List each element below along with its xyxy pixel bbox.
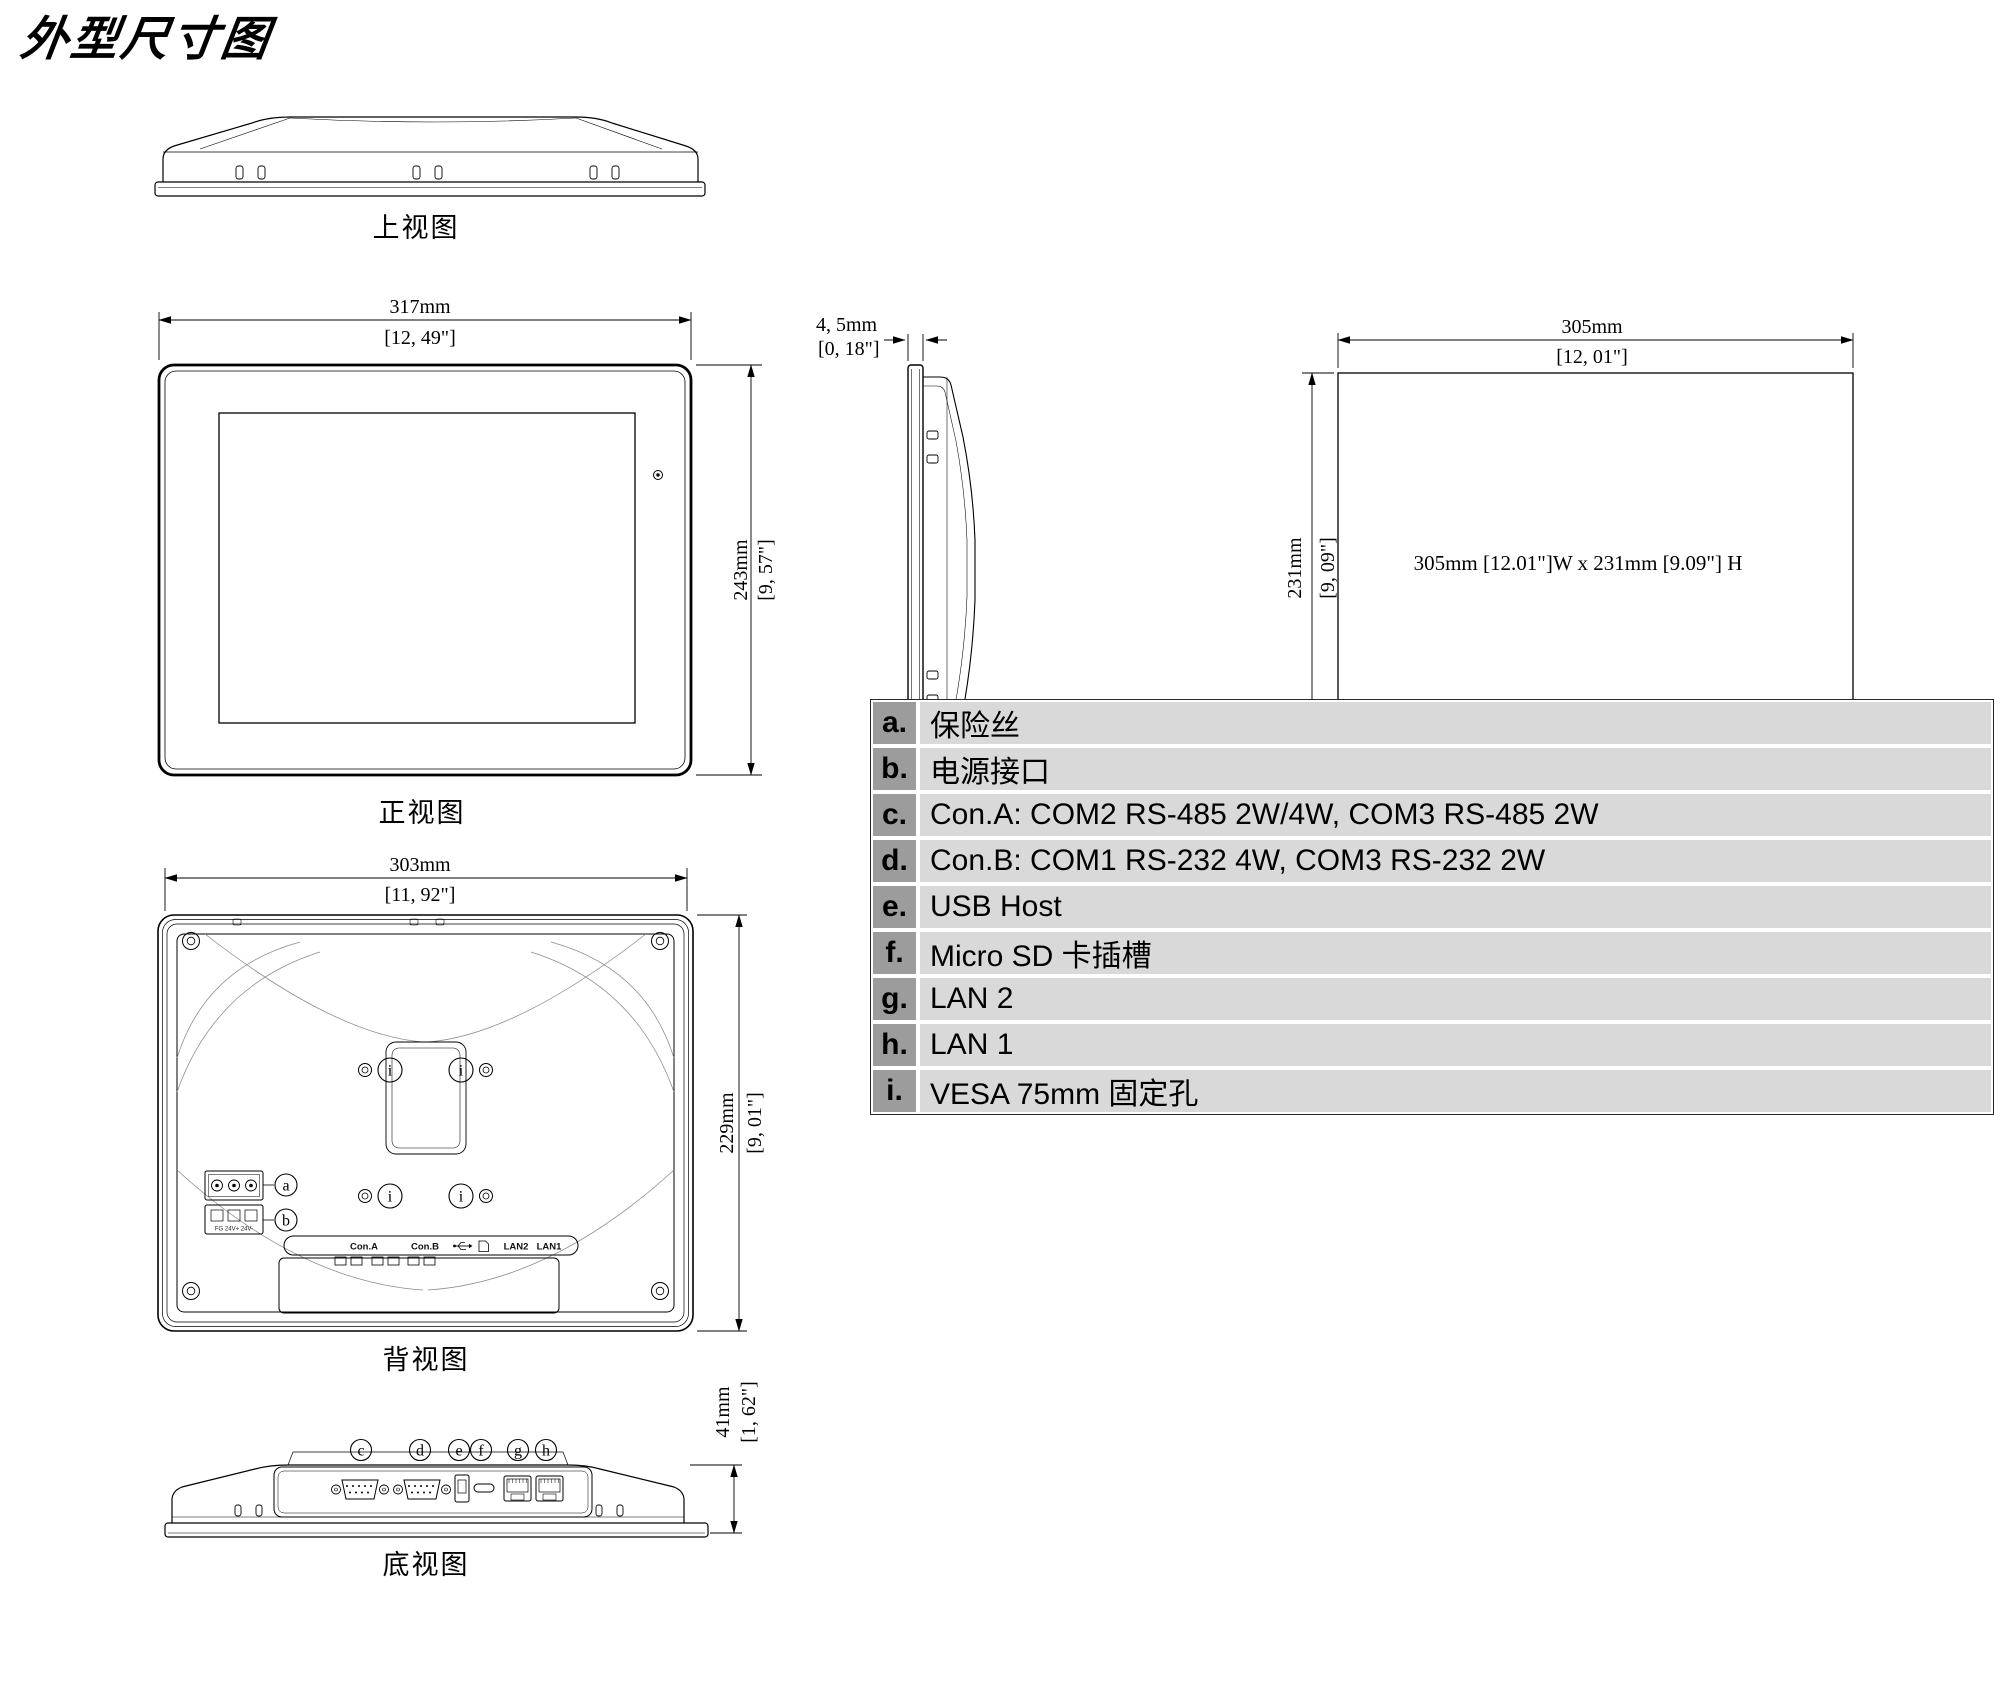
side-thickness-dimension: 4, 5mm [0, 18"] — [816, 314, 947, 361]
callout-h: h — [542, 1443, 550, 1460]
vesa-mount-plate — [386, 1042, 466, 1154]
side-thickness-mm: 4, 5mm — [816, 314, 878, 336]
bottom-callout-markers: c d e f g h — [351, 1440, 557, 1461]
power-marking: FG 24V+ 24V- — [215, 1227, 253, 1233]
strip-label-lan2: LAN2 — [504, 1242, 529, 1253]
front-width-mm: 317mm — [389, 296, 451, 318]
power-connector-block: FG 24V+ 24V- — [205, 1205, 274, 1234]
callout-b: b — [282, 1213, 290, 1230]
legend-key-f: f. — [871, 930, 918, 976]
page: { "title": "外型尺寸图", "views": { "top": { … — [0, 0, 2000, 1694]
front-height-dimension: 243mm [9, 57"] — [696, 365, 777, 775]
legend-desc-a: 保险丝 — [918, 700, 1993, 746]
serial-port-con-a — [332, 1480, 389, 1499]
cutout-width-dimension: 305mm [12, 01"] — [1338, 316, 1853, 368]
strip-label-con-a: Con.A — [350, 1242, 378, 1253]
bottom-view-vent-slots — [235, 1505, 623, 1516]
callout-i-1: i — [388, 1063, 393, 1080]
front-width-dimension: 317mm [12, 49"] — [159, 296, 691, 360]
legend-row-g: g. LAN 2 — [871, 976, 1993, 1022]
legend-key-e: e. — [871, 884, 918, 930]
side-view-vent-slots — [927, 431, 938, 703]
usb-port — [455, 1475, 469, 1502]
bottom-depth-in: [1, 62"] — [738, 1381, 760, 1442]
bottom-view-label: 底视图 — [383, 1550, 470, 1580]
legend-row-c: c. Con.A: COM2 RS-485 2W/4W, COM3 RS-485… — [871, 792, 1993, 838]
side-thickness-in: [0, 18"] — [818, 338, 879, 360]
callout-c: c — [357, 1443, 364, 1460]
rear-width-mm: 303mm — [389, 854, 451, 876]
callout-i-3: i — [388, 1189, 393, 1206]
top-view-vent-slots — [236, 166, 619, 179]
legend-desc-e: USB Host — [918, 884, 1993, 930]
rear-height-in: [9, 01"] — [744, 1092, 766, 1153]
rear-view: i i i i a FG 24V+ 24V- — [158, 854, 766, 1375]
rear-width-dimension: 303mm [11, 92"] — [165, 854, 687, 911]
serial-port-con-b — [394, 1480, 451, 1499]
callout-f: f — [478, 1443, 484, 1460]
bottom-depth-dimension: 41mm [1, 62"] — [690, 1381, 760, 1533]
legend-key-g: g. — [871, 976, 918, 1022]
legend-table: a. 保险丝 b. 电源接口 c. Con.A: COM2 RS-485 2W/… — [870, 699, 1994, 1115]
callout-a-marker: a — [275, 1174, 297, 1196]
fuse-block — [205, 1171, 274, 1200]
legend-key-h: h. — [871, 1022, 918, 1068]
legend-row-d: d. Con.B: COM1 RS-232 4W, COM3 RS-232 2W — [871, 838, 1993, 884]
cutout-height-mm: 231mm — [1284, 537, 1306, 599]
legend-key-i: i. — [871, 1068, 918, 1114]
legend-desc-g: LAN 2 — [918, 976, 1993, 1022]
connector-label-strip: Con.A Con.B LAN2 LAN1 — [284, 1236, 578, 1255]
legend-key-d: d. — [871, 838, 918, 884]
rear-height-dimension: 229mm [9, 01"] — [697, 915, 766, 1331]
front-height-in: [9, 57"] — [755, 539, 777, 600]
front-view-label: 正视图 — [379, 798, 466, 828]
top-view-label: 上视图 — [373, 213, 460, 243]
legend-key-c: c. — [871, 792, 918, 838]
legend-key-b: b. — [871, 746, 918, 792]
bottom-view: c d e f g h 41mm [1, 62"] 底视图 — [165, 1381, 760, 1580]
callout-b-marker: b — [275, 1209, 297, 1231]
top-view: 上视图 — [155, 117, 705, 243]
strip-label-lan1: LAN1 — [537, 1242, 563, 1253]
legend-desc-b: 电源接口 — [918, 746, 1993, 792]
usb-icon — [453, 1243, 472, 1250]
legend-row-b: b. 电源接口 — [871, 746, 1993, 792]
strip-label-con-b: Con.B — [411, 1242, 439, 1253]
front-view: 317mm [12, 49"] 243mm [9, 57"] 正视图 — [159, 296, 777, 828]
callout-a: a — [282, 1178, 289, 1195]
legend-key-a: a. — [871, 700, 918, 746]
rear-height-mm: 229mm — [716, 1092, 738, 1154]
front-screen — [219, 413, 635, 723]
micro-sd-icon — [479, 1241, 489, 1252]
power-led — [654, 471, 663, 480]
front-height-mm: 243mm — [730, 539, 752, 601]
rear-view-label: 背视图 — [383, 1345, 470, 1375]
legend-desc-f: Micro SD 卡插槽 — [918, 930, 1993, 976]
legend-desc-i: VESA 75mm 固定孔 — [918, 1068, 1993, 1114]
legend-row-a: a. 保险丝 — [871, 700, 1993, 746]
legend-row-f: f. Micro SD 卡插槽 — [871, 930, 1993, 976]
cutout-height-in: [9, 09"] — [1317, 537, 1339, 598]
callout-i-4: i — [459, 1189, 464, 1206]
legend-desc-c: Con.A: COM2 RS-485 2W/4W, COM3 RS-485 2W — [918, 792, 1993, 838]
callout-i-2: i — [459, 1063, 464, 1080]
lan1-port — [536, 1476, 563, 1501]
lan2-port — [504, 1476, 531, 1501]
front-width-in: [12, 49"] — [384, 327, 455, 349]
callout-d: d — [416, 1443, 424, 1460]
cutout-width-mm: 305mm — [1561, 316, 1623, 338]
legend-row-e: e. USB Host — [871, 884, 1993, 930]
rear-width-in: [11, 92"] — [385, 884, 456, 906]
legend-desc-h: LAN 1 — [918, 1022, 1993, 1068]
legend-row-h: h. LAN 1 — [871, 1022, 1993, 1068]
rear-surface-curves — [177, 934, 674, 1290]
legend-row-i: i. VESA 75mm 固定孔 — [871, 1068, 1993, 1114]
legend-desc-d: Con.B: COM1 RS-232 4W, COM3 RS-232 2W — [918, 838, 1993, 884]
callout-e: e — [455, 1443, 462, 1460]
cutout-note: 305mm [12.01"]W x 231mm [9.09"] H — [1414, 551, 1743, 575]
callout-g: g — [514, 1443, 522, 1460]
vesa-mount-holes — [359, 1064, 493, 1203]
cutout-width-in: [12, 01"] — [1556, 346, 1627, 368]
micro-sd-slot — [474, 1484, 494, 1492]
bottom-depth-mm: 41mm — [712, 1386, 734, 1438]
